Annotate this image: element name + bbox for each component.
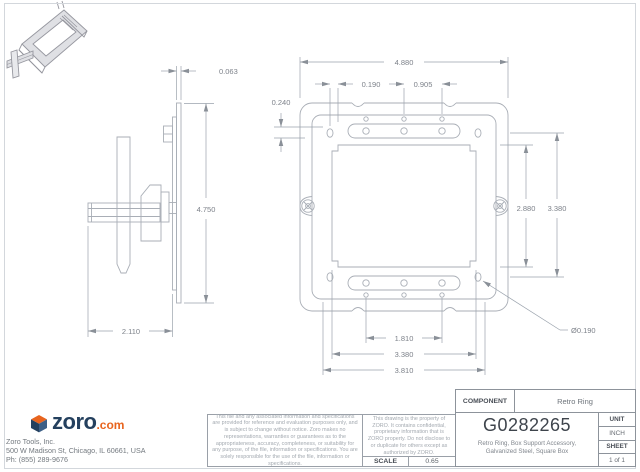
drawing-sheet: 0.063 4.750 2.110 4.880 0.190 0.905 0.24… [0, 0, 640, 472]
side-view [88, 103, 181, 303]
dim-edge-offset: 0.240 [272, 98, 291, 107]
company-phone: Ph: (855) 289-9676 [6, 455, 204, 464]
dim-hole-span: 3.810 [395, 366, 414, 375]
scale-label: SCALE [363, 457, 409, 466]
sheet-label: SHEET [599, 441, 635, 455]
company-name: Zoro Tools, Inc. [6, 437, 204, 446]
dim-opening-width: 3.380 [395, 350, 414, 359]
scale-row: SCALE 0.65 [362, 456, 456, 467]
logo-suffix-text: .com [96, 418, 124, 433]
sheet-value: 1 of 1 [599, 454, 635, 467]
isometric-view [7, 1, 87, 78]
company-address: 500 W Madison St, Chicago, IL 60661, USA [6, 446, 204, 455]
front-view [300, 102, 508, 312]
part-description-line2: Galvanized Steel, Square Box [456, 448, 598, 456]
disclaimer-property-notice: This drawing is the property of ZORO. It… [362, 414, 456, 457]
part-description-line1: Retro Ring, Box Support Accessory, [456, 440, 598, 448]
disclaimer-file-notice: This file and any associated information… [207, 414, 363, 467]
dim-hole-diameter: Ø0.190 [571, 326, 596, 335]
dim-overall-width: 4.880 [395, 58, 414, 67]
part-number: G0282265 [456, 415, 598, 436]
scale-value: 0.65 [409, 457, 455, 466]
dim-thickness: 0.063 [219, 67, 238, 76]
dim-hole-offset: 0.190 [362, 80, 381, 89]
dim-depth: 2.110 [122, 327, 140, 336]
zoro-cube-icon [30, 414, 48, 433]
logo-brand-text: zoro [52, 411, 96, 433]
component-value: Retro Ring [515, 390, 635, 412]
component-label: COMPONENT [456, 390, 515, 412]
dim-height: 4.750 [197, 205, 216, 214]
dim-opening-height: 2.880 [517, 204, 536, 213]
dim-ring-height: 3.380 [548, 204, 567, 213]
technical-drawing: 0.063 4.750 2.110 4.880 0.190 0.905 0.24… [0, 0, 640, 412]
unit-value: INCH [599, 427, 635, 441]
company-block: zoro .com Zoro Tools, Inc. 500 W Madison… [6, 403, 204, 467]
zoro-logo: zoro .com [6, 403, 204, 433]
dimension-labels: 0.063 4.750 2.110 4.880 0.190 0.905 0.24… [122, 58, 596, 375]
dim-hole-pitch: 0.905 [414, 80, 433, 89]
dim-slot-span: 1.810 [395, 334, 414, 343]
unit-label: UNIT [599, 413, 635, 427]
title-block: COMPONENT Retro Ring G0282265 Retro Ring… [455, 389, 636, 467]
